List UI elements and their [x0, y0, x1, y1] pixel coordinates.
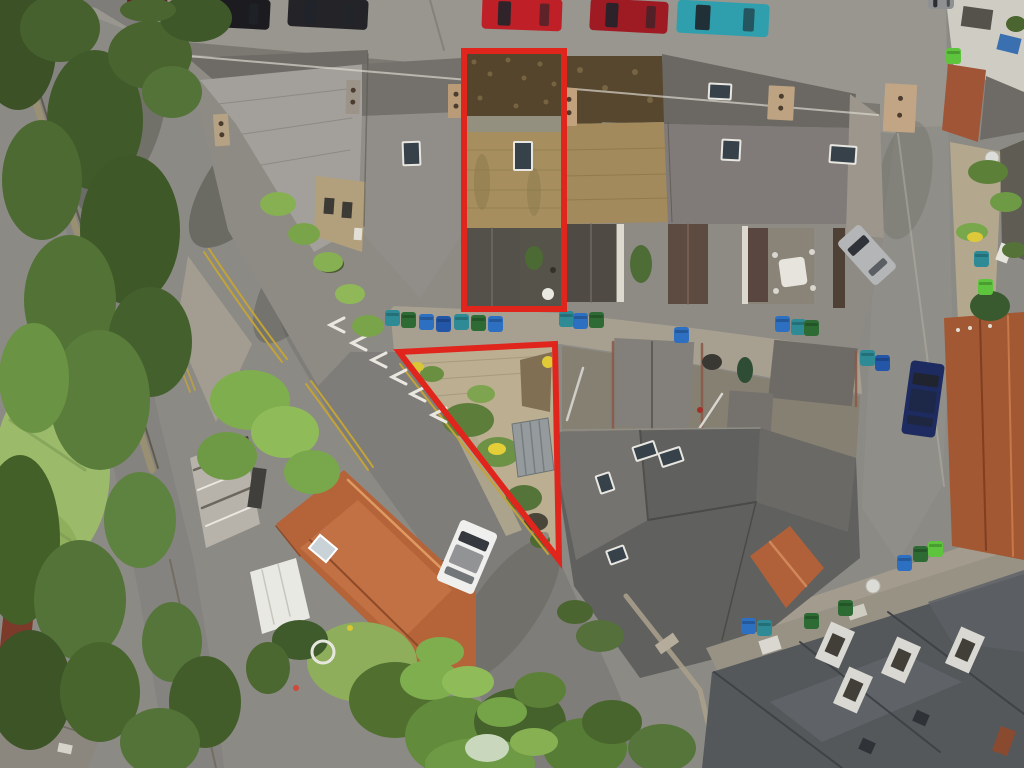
bush — [576, 620, 624, 652]
hedge — [477, 697, 527, 727]
bin-lid — [898, 558, 911, 561]
moss-speckle — [647, 97, 653, 103]
tree — [104, 472, 176, 568]
wheelie-bin-teal — [385, 310, 400, 326]
wheelie-bin-dgreen — [804, 320, 819, 336]
garden-shed — [970, 291, 1010, 321]
bin-lid — [574, 316, 587, 319]
bush — [335, 284, 365, 304]
yard-clutter — [702, 354, 722, 370]
chimney-stack — [345, 80, 360, 114]
bush — [557, 600, 593, 624]
yard-plants — [630, 245, 652, 283]
aerial-photo-stage — [0, 0, 1024, 768]
bin-body — [974, 251, 989, 267]
wheelie-bin-blue — [741, 618, 756, 634]
bin-body — [838, 600, 853, 616]
chimney-stack — [767, 85, 795, 120]
chimney — [345, 80, 360, 114]
hedge — [416, 637, 464, 667]
rear-window — [947, 0, 950, 7]
rear-window — [646, 6, 657, 29]
wheelie-bin-lime — [946, 48, 961, 64]
wheelie-bin-teal — [559, 311, 574, 327]
moss-streak — [527, 168, 541, 216]
chimney-pot — [567, 97, 572, 102]
wheelie-bin-blue — [897, 555, 912, 571]
moss-speckle — [577, 67, 583, 73]
rear-window — [345, 3, 356, 24]
tree — [142, 66, 202, 118]
wheelie-bin-lime — [928, 541, 943, 557]
moss-speckle — [544, 100, 549, 105]
bin-lid — [776, 319, 789, 322]
tree — [0, 323, 69, 433]
bin-body — [875, 355, 890, 371]
bin-body — [559, 311, 574, 327]
subject-roof-band — [464, 116, 564, 132]
bin-lid — [758, 623, 771, 626]
bin-body — [791, 319, 806, 335]
chimney — [213, 114, 230, 147]
wheelie-bin-blue — [674, 327, 689, 343]
bin-lid — [590, 315, 603, 318]
moss-speckle — [538, 62, 543, 67]
bin-lid — [742, 621, 755, 624]
wheelie-bin-teal — [791, 319, 806, 335]
white-wall — [742, 226, 748, 304]
tree — [197, 432, 257, 480]
door — [354, 228, 363, 241]
bush — [260, 192, 296, 216]
chimney-pot — [454, 92, 459, 97]
bin-body — [757, 620, 772, 636]
car-body — [481, 0, 562, 31]
yard-clutter — [697, 407, 703, 413]
wheelie-bin-dgreen — [471, 315, 486, 331]
bush — [313, 252, 343, 272]
ridge-finial — [968, 326, 972, 330]
bin-body — [860, 350, 875, 366]
bin-body — [488, 316, 503, 332]
wheelie-bin-lime — [978, 279, 993, 295]
bush — [968, 160, 1008, 184]
wheelie-bin-blue — [775, 316, 790, 332]
bin-body — [573, 313, 588, 329]
subject-house-interior — [464, 52, 564, 306]
bin-lid — [437, 319, 450, 322]
moss-speckle — [478, 96, 483, 101]
windshield — [605, 3, 619, 28]
satellite-dish — [866, 579, 880, 593]
bin-body — [897, 555, 912, 571]
windshield — [498, 1, 512, 26]
bin-lid — [914, 549, 927, 552]
garden-table — [778, 256, 808, 287]
wheelie-bin-dgreen — [589, 312, 604, 328]
flowers — [293, 685, 299, 691]
moss-speckle — [522, 76, 527, 81]
flowering-bush — [465, 734, 509, 762]
bin-body — [674, 327, 689, 343]
wheelie-bin-dgreen — [838, 600, 853, 616]
car-body — [287, 0, 368, 30]
bin-lid — [792, 322, 805, 325]
yellow-flowers — [488, 443, 506, 455]
shrub — [467, 385, 495, 403]
garden-chair — [809, 249, 815, 255]
bin-lid — [805, 616, 818, 619]
gray-car-partial — [928, 0, 954, 9]
roof-window — [709, 83, 732, 99]
bush — [352, 315, 384, 337]
ridge-finial — [988, 324, 992, 328]
wheelie-bin-dgreen — [913, 546, 928, 562]
bin-lid — [455, 317, 468, 320]
windshield — [303, 0, 317, 23]
wheelie-bin-blue2 — [436, 316, 451, 332]
bin-lid — [839, 603, 852, 606]
bin-body — [913, 546, 928, 562]
chimney-pot — [567, 110, 572, 115]
wheelie-bin-teal — [454, 314, 469, 330]
bin-body — [928, 541, 943, 557]
window — [323, 198, 334, 215]
bin-lid — [947, 51, 960, 54]
moss-speckle — [602, 85, 608, 91]
bin-body — [804, 613, 819, 629]
ridge-finial — [956, 328, 960, 332]
hedge — [510, 728, 558, 756]
window — [341, 202, 352, 219]
bin-lid — [929, 544, 942, 547]
rear-window — [249, 3, 259, 24]
chimney-pot — [454, 104, 459, 109]
bin-body — [804, 320, 819, 336]
bin-body — [978, 279, 993, 295]
house-b-roof-upper — [362, 58, 462, 116]
garden-chair — [772, 252, 778, 258]
roof-window — [721, 140, 740, 161]
house-d-roof — [565, 122, 670, 224]
wheelie-bin-teal — [757, 620, 772, 636]
roof-hatch — [961, 6, 993, 30]
car-roof-glass — [908, 388, 937, 414]
bin-lid — [402, 315, 415, 318]
wheelie-bin-blue2 — [875, 355, 890, 371]
black-car — [287, 0, 368, 30]
bin-body — [401, 312, 416, 328]
yard-pot — [550, 267, 556, 273]
rear-window — [743, 8, 755, 32]
bin-lid — [489, 319, 502, 322]
hedge — [442, 666, 494, 698]
bin-body — [385, 310, 400, 326]
wheelie-bin-blue — [488, 316, 503, 332]
moss-speckle — [506, 58, 511, 63]
wheelie-bin-dgreen — [401, 312, 416, 328]
windshield — [933, 0, 937, 7]
garden-chair — [773, 288, 779, 294]
hedge — [246, 642, 290, 694]
bin-lid — [386, 313, 399, 316]
tree — [284, 450, 340, 494]
rear-extension-roof — [748, 228, 768, 302]
wheelie-bin-teal — [974, 251, 989, 267]
subject-roof-window — [514, 142, 532, 170]
subject-yard — [520, 228, 564, 306]
wheelie-bin-dgreen — [804, 613, 819, 629]
scene-svg — [0, 0, 1024, 768]
bin-lid — [861, 353, 874, 356]
bush — [990, 192, 1022, 212]
moss-speckle — [514, 104, 519, 109]
water-tank — [737, 357, 753, 383]
moss-speckle — [632, 69, 638, 75]
yellow-flowers — [542, 356, 554, 368]
bin-lid — [805, 323, 818, 326]
garden-chair — [810, 285, 816, 291]
bush — [288, 223, 320, 245]
bin-body — [775, 316, 790, 332]
moss-speckle — [488, 72, 493, 77]
wheelie-bin-blue — [419, 314, 434, 330]
house-e-roof — [664, 124, 852, 224]
bin-lid — [876, 358, 889, 361]
bin-lid — [675, 330, 688, 333]
bin-body — [419, 314, 434, 330]
dark-red-car — [589, 0, 669, 34]
yellow-flowers — [967, 232, 983, 242]
bin-lid — [472, 318, 485, 321]
wheelie-bin-blue — [573, 313, 588, 329]
roof-window — [403, 142, 421, 166]
bin-lid — [560, 314, 573, 317]
chimney-stack — [213, 114, 230, 147]
flowers — [347, 625, 353, 631]
teal-car — [676, 0, 770, 37]
roof-window — [829, 145, 856, 164]
bin-body — [589, 312, 604, 328]
bin-lid — [975, 254, 988, 257]
car-body — [589, 0, 669, 34]
car-body — [928, 0, 954, 9]
wheelie-bin-teal — [860, 350, 875, 366]
tree — [2, 120, 82, 240]
hedge — [514, 672, 566, 708]
red-car — [481, 0, 562, 31]
yard-table — [542, 288, 554, 300]
white-wall — [617, 224, 624, 302]
bin-lid — [420, 317, 433, 320]
bin-body — [454, 314, 469, 330]
bin-lid — [979, 282, 992, 285]
windshield — [695, 5, 711, 31]
chimney — [767, 85, 795, 120]
bin-body — [436, 316, 451, 332]
yard-plants — [525, 246, 543, 270]
rear-window — [539, 3, 549, 26]
moss-speckle — [552, 82, 557, 87]
chimney-stack — [883, 83, 917, 133]
bin-body — [946, 48, 961, 64]
bin-body — [471, 315, 486, 331]
scene-root — [0, 0, 1024, 768]
car-body — [676, 0, 770, 37]
bin-body — [741, 618, 756, 634]
chimney — [883, 83, 917, 133]
outbuilding-roof — [768, 340, 858, 406]
moss-speckle — [472, 60, 477, 65]
moss-streak — [474, 154, 490, 210]
